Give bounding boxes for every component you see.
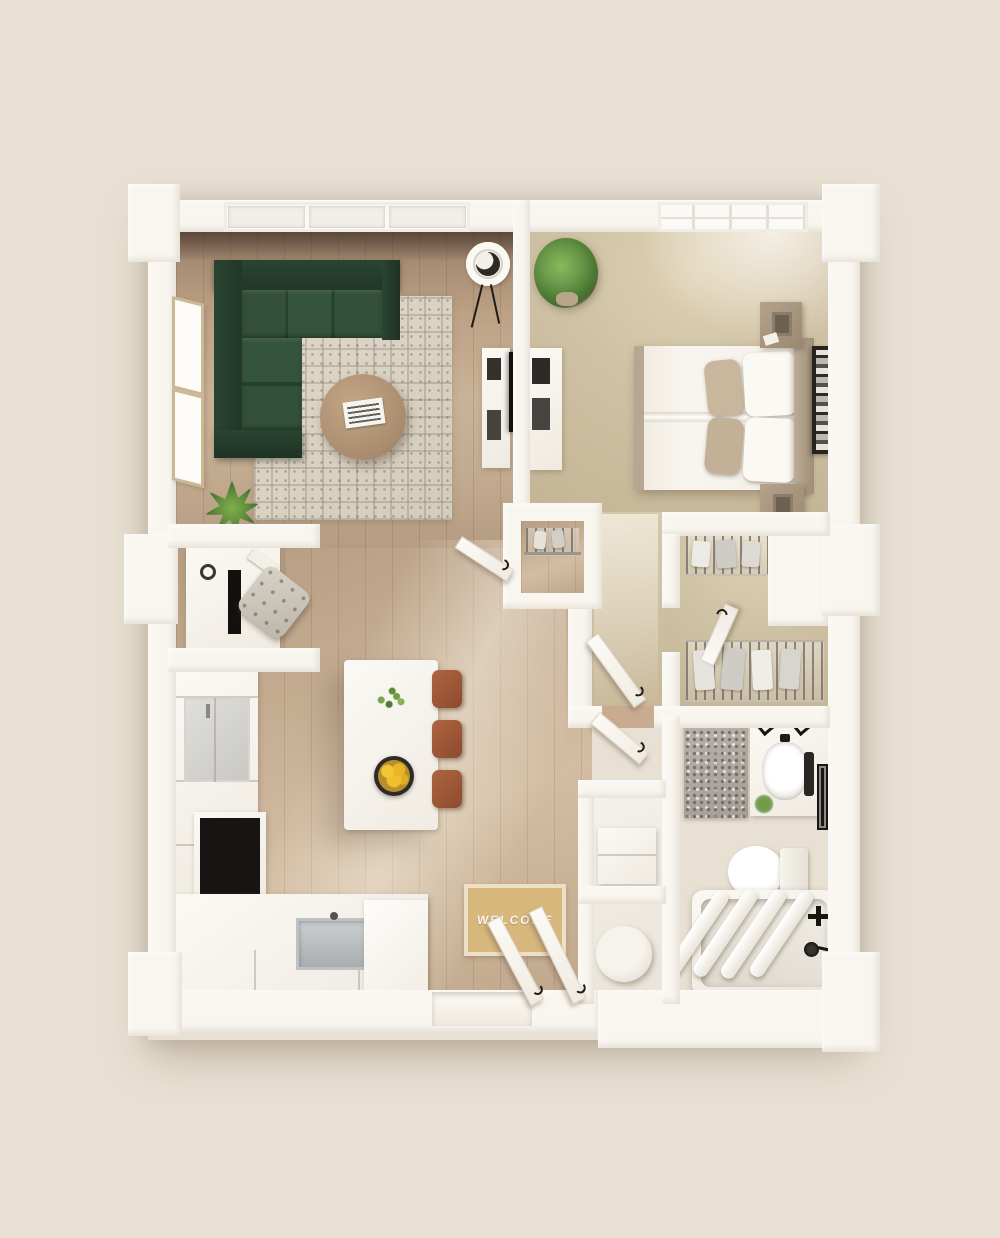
fridge-seam xyxy=(214,698,216,782)
wall-closet-west-upper xyxy=(662,534,680,608)
sofa-seats-top xyxy=(242,290,382,338)
side-table xyxy=(466,242,510,286)
pilaster-bottom-left xyxy=(128,952,182,1036)
wall-hall-west xyxy=(568,604,592,720)
vanity-faucet xyxy=(780,734,790,742)
stove-cooktop xyxy=(200,818,260,898)
desk-lamp xyxy=(200,564,216,580)
fridge-handle xyxy=(206,704,210,718)
fruit-bowl xyxy=(374,756,414,796)
bed-footboard xyxy=(634,346,644,490)
pillow-white-1 xyxy=(742,351,797,418)
door-handle xyxy=(532,984,544,996)
console-decor-1 xyxy=(487,358,501,380)
nightstand-top xyxy=(760,302,802,348)
sofa-arm-bottom xyxy=(214,430,302,458)
pilaster-top-left xyxy=(128,184,180,262)
kitchen-sink xyxy=(296,918,372,970)
nightstand-note-top xyxy=(763,332,779,346)
hanger-items xyxy=(533,531,547,550)
hanging-clothes xyxy=(741,541,760,568)
washer-seam xyxy=(598,854,656,856)
bath-rug xyxy=(684,722,748,818)
entry-door-opening xyxy=(432,992,532,1026)
pillow-taupe-1 xyxy=(703,358,745,417)
vanity-plant xyxy=(754,794,774,814)
tub-handle-stem xyxy=(816,906,821,926)
wall-laundry-top xyxy=(578,780,666,798)
kitchen-island xyxy=(344,660,438,830)
living-wall-art-2 xyxy=(172,388,204,488)
window-bedroom xyxy=(658,202,808,232)
bedroom-plant-pot xyxy=(556,292,578,306)
coat-closet-rod xyxy=(524,552,581,555)
wall-bathroom-west xyxy=(662,716,680,1004)
pilaster-top-right xyxy=(822,184,880,262)
magazine-print xyxy=(347,402,381,424)
wall-right xyxy=(828,200,860,1048)
hanging-clothes xyxy=(779,648,802,689)
window-pane xyxy=(309,206,386,228)
wall-laundry-shelf xyxy=(578,886,666,904)
refrigerator xyxy=(184,698,250,782)
headboard xyxy=(794,338,814,494)
wire-shelf-top xyxy=(686,534,778,576)
wall-nook-bottom xyxy=(168,648,320,672)
pilaster-bottom-right xyxy=(822,952,880,1052)
hanging-clothes xyxy=(691,540,711,567)
wall-bottom-right xyxy=(598,990,860,1048)
lemons xyxy=(378,760,410,792)
sofa-back-left xyxy=(214,260,242,458)
vanity-sink xyxy=(762,742,808,800)
sofa-seats-left xyxy=(242,338,302,430)
hanging-clothes xyxy=(715,539,737,569)
window-pane xyxy=(228,206,305,228)
island-plant xyxy=(368,682,412,718)
window-living-room xyxy=(224,202,470,232)
wall-nook-top xyxy=(168,524,320,548)
leaning-mirror xyxy=(817,764,828,830)
hanging-clothes xyxy=(751,650,773,691)
side-table-decor xyxy=(476,252,500,276)
double-bed xyxy=(634,346,798,490)
tv-console xyxy=(482,348,510,468)
dresser-decor-2 xyxy=(532,398,550,430)
hanger-items xyxy=(551,529,565,548)
door-handle xyxy=(575,982,586,993)
living-wall-art-1 xyxy=(172,296,204,396)
bedroom-dresser xyxy=(528,348,562,470)
window-pane xyxy=(389,206,466,228)
hanging-clothes xyxy=(720,647,746,691)
bar-stool-2 xyxy=(432,720,462,758)
pillow-taupe-2 xyxy=(704,417,745,476)
wall-bedroom-bottom xyxy=(662,512,830,536)
stove xyxy=(194,812,266,904)
tub-spout xyxy=(804,942,819,957)
sofa-arm-right xyxy=(382,260,400,340)
bar-stool-1 xyxy=(432,670,462,708)
console-decor-2 xyxy=(487,410,501,440)
magazine-stack xyxy=(342,397,385,428)
bar-stool-3 xyxy=(432,770,462,808)
vanity-tray xyxy=(804,752,814,796)
dresser-decor-1 xyxy=(532,358,550,384)
washer xyxy=(598,828,656,884)
closet-chase-column xyxy=(768,524,828,626)
pilaster-right-mid xyxy=(822,524,880,616)
pillow-white-2 xyxy=(742,417,797,484)
sink-faucet xyxy=(330,912,338,920)
wall-living-bedroom-divider xyxy=(513,200,530,514)
bathtub xyxy=(692,890,836,996)
water-heater xyxy=(596,926,652,982)
floor-plan-scene: WELCOME xyxy=(0,0,1000,1238)
